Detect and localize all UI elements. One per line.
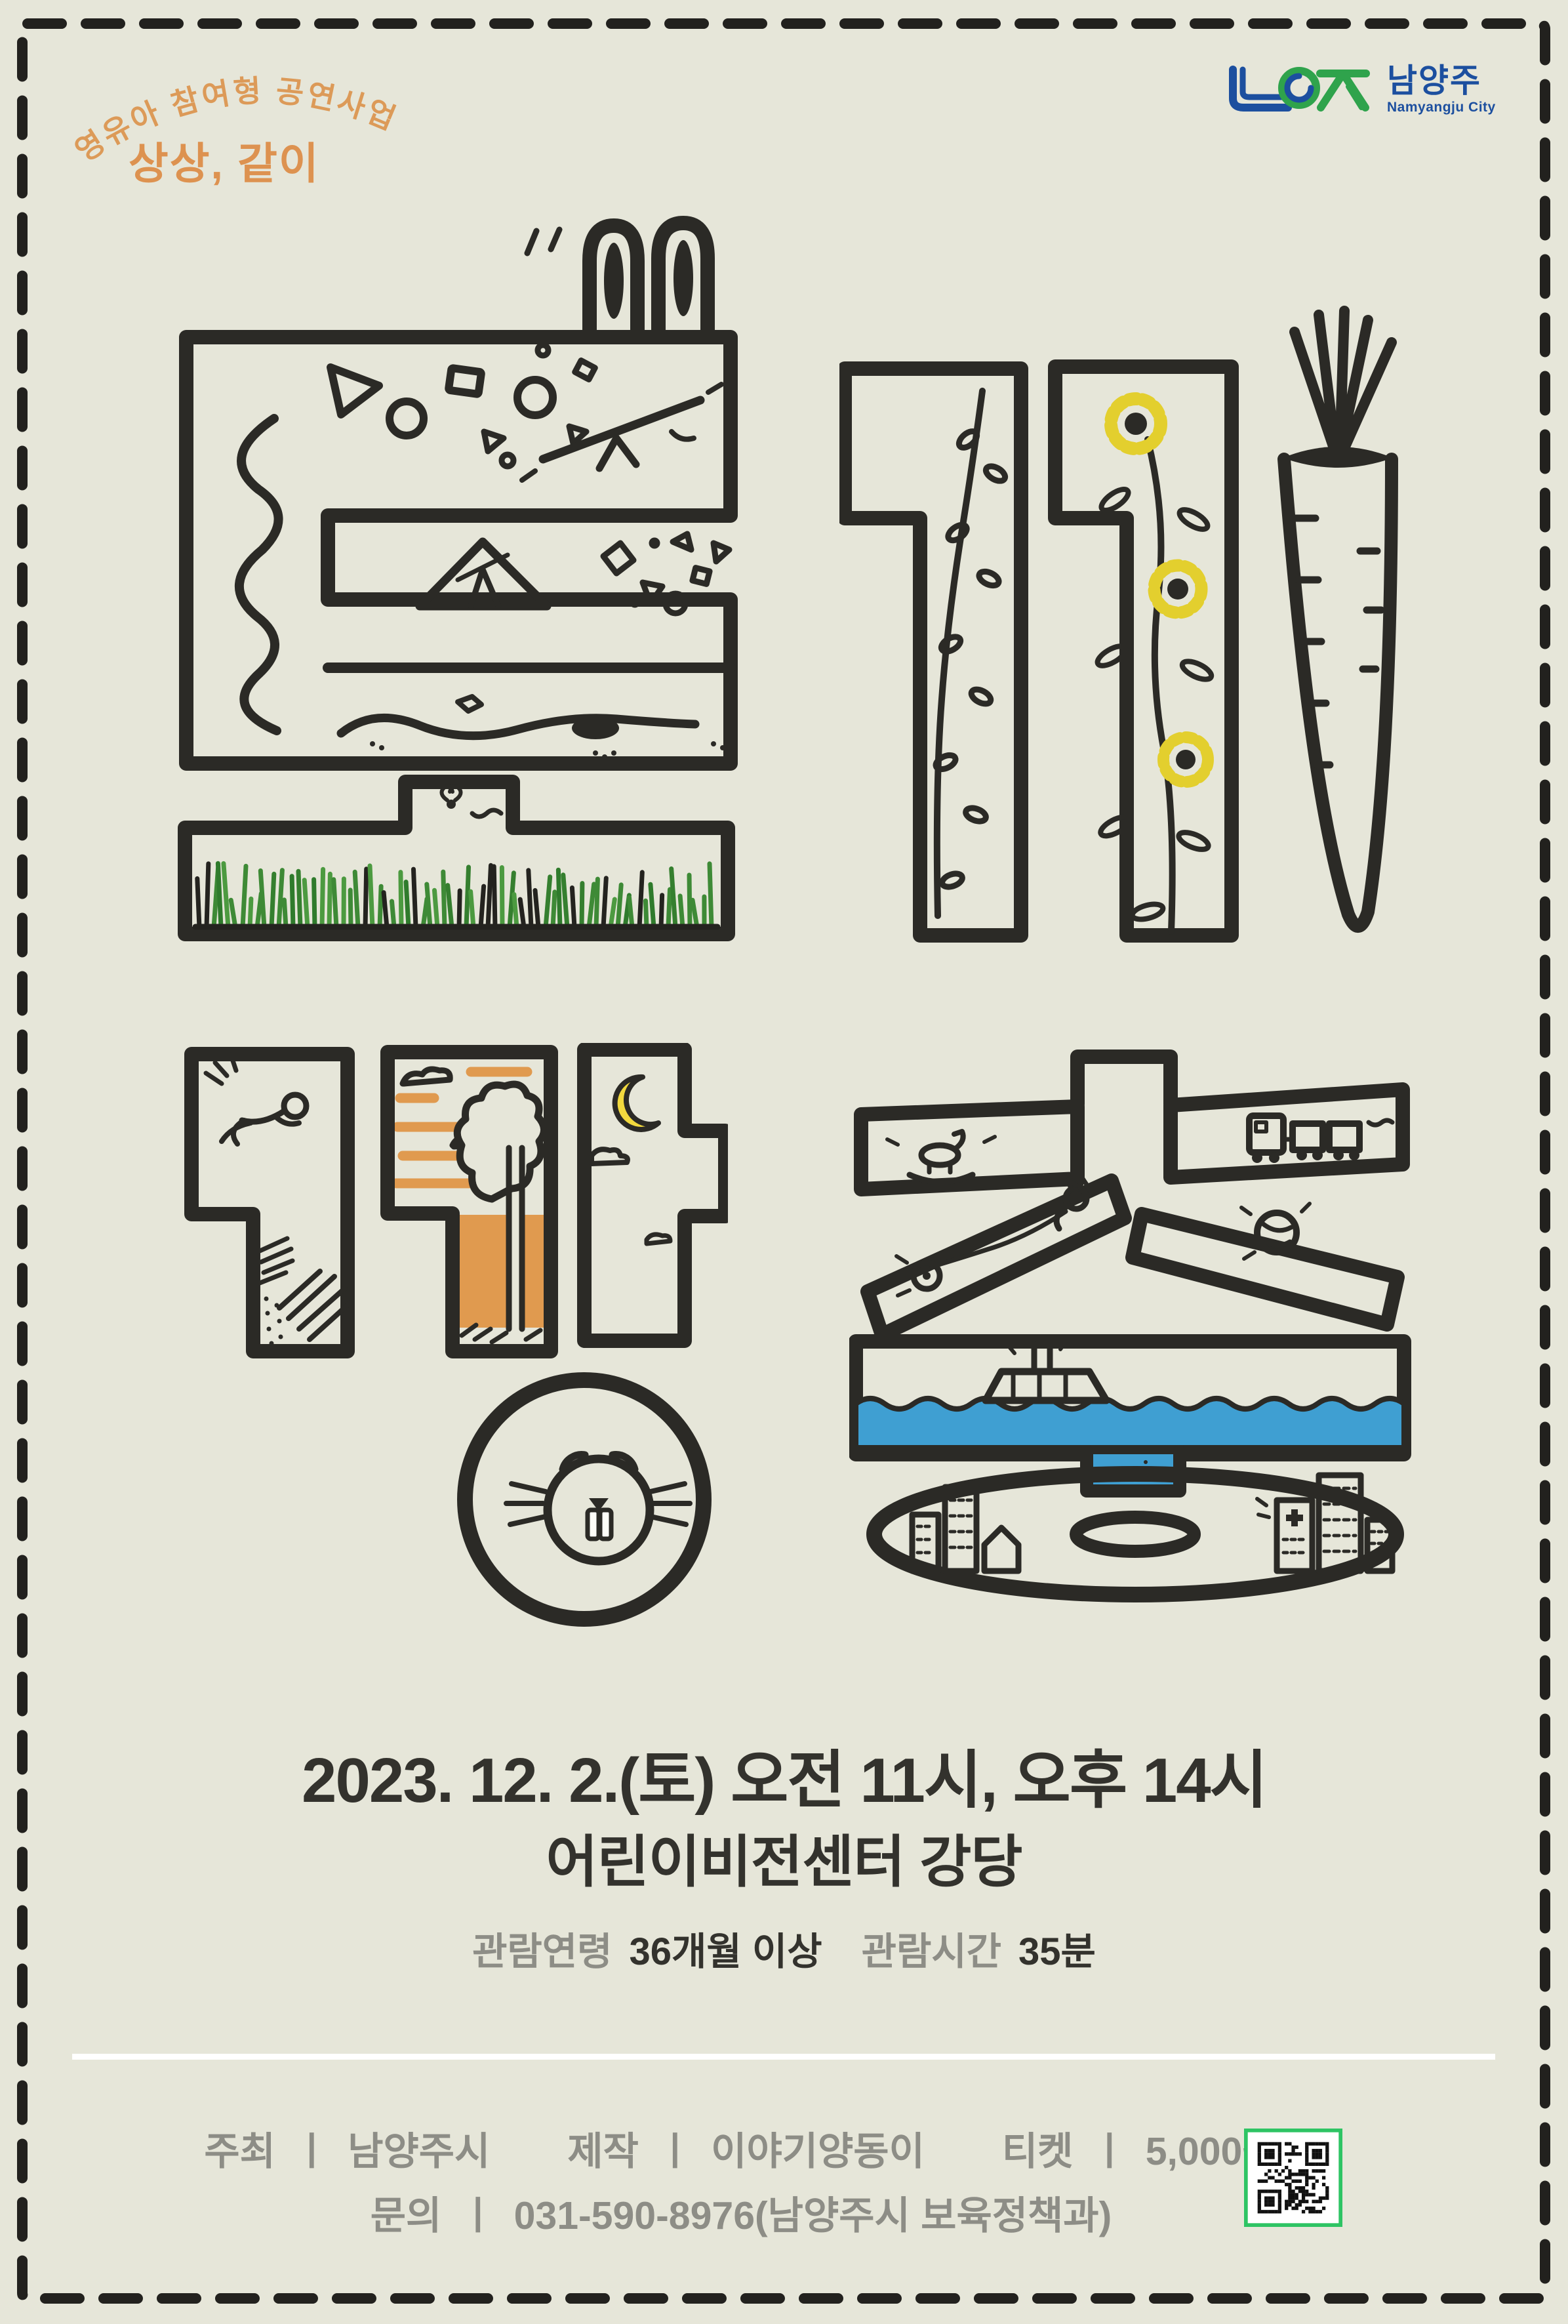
city-emblem-icon bbox=[1225, 64, 1373, 117]
center-hole bbox=[1076, 1517, 1194, 1551]
glyph-kki-flowers-carrot bbox=[839, 302, 1430, 951]
toy-train-doodle bbox=[1249, 1116, 1392, 1163]
city-logo-text: 남양주 Namyangju City bbox=[1387, 64, 1496, 115]
glyph-to-rabbit bbox=[176, 215, 740, 956]
divider-line bbox=[72, 2054, 1495, 2060]
inquiry-label: 문의 bbox=[371, 2184, 442, 2240]
sunflower-stalk bbox=[1095, 399, 1214, 931]
host-group: 주최 ㅣ 남양주시 bbox=[204, 2120, 490, 2176]
shape-doodles bbox=[331, 345, 595, 466]
separator: ㅣ bbox=[294, 2120, 329, 2176]
duration-value: 35분 bbox=[1018, 1921, 1096, 1976]
ticket-group: 티켓 ㅣ 5,000원 bbox=[1002, 2120, 1278, 2176]
bar-leaves-outline bbox=[845, 369, 1021, 935]
maker-value: 이야기양동이 bbox=[711, 2120, 925, 2176]
glyph-chong bbox=[849, 1046, 1413, 1604]
vowel-a-outline bbox=[584, 1050, 725, 1341]
separator: ㅣ bbox=[460, 2184, 495, 2240]
water-fill bbox=[856, 1398, 1404, 1448]
sunset-ground-fill bbox=[453, 1215, 549, 1328]
crescent-moon bbox=[615, 1077, 658, 1130]
hill-doodle bbox=[341, 697, 725, 760]
grass-blades bbox=[195, 863, 717, 928]
rocking-horse-doodle bbox=[887, 1131, 995, 1182]
leg-right bbox=[1133, 1214, 1397, 1324]
glyph-kkang bbox=[184, 1043, 728, 1640]
program-title: 상상, 같이 bbox=[129, 129, 548, 192]
age-group: 관람연령 36개월 이상 bbox=[472, 1921, 822, 1976]
tree-crown bbox=[457, 1084, 544, 1199]
night-clouds bbox=[592, 1149, 670, 1244]
meta-line: 관람연령 36개월 이상 관람시간 35분 bbox=[0, 1921, 1568, 1976]
host-value: 남양주시 bbox=[348, 2120, 490, 2176]
running-child-doodle bbox=[206, 1055, 306, 1144]
maker-label: 제작 bbox=[567, 2120, 639, 2176]
spiral-scribble bbox=[239, 418, 279, 731]
inquiry-group: 문의 ㅣ 031-590-8976(남양주시 보육정책과) bbox=[371, 2184, 1112, 2240]
schedule-line: 2023. 12. 2.(토) 오전 11시, 오후 14시 bbox=[0, 1729, 1568, 1820]
host-label: 주최 bbox=[204, 2120, 275, 2176]
poster-root: { "header": { "arc_label": "영유아 참여형 공연사업… bbox=[0, 0, 1568, 2324]
separator: ㅣ bbox=[1091, 2120, 1127, 2176]
inquiry-value: 031-590-8976(남양주시 보육정책과) bbox=[514, 2184, 1112, 2240]
carrot-doodle bbox=[1283, 311, 1393, 926]
separator: ㅣ bbox=[657, 2120, 693, 2176]
boat-doodle bbox=[986, 1341, 1106, 1400]
venue-line: 어린이비전센터 강당 bbox=[0, 1816, 1568, 1898]
age-value: 36개월 이상 bbox=[630, 1921, 822, 1976]
tick-marks bbox=[527, 230, 559, 253]
qr-code bbox=[1244, 2129, 1342, 2227]
field-hatch bbox=[258, 1238, 350, 1346]
ring-outline bbox=[465, 1380, 704, 1619]
duration-label: 관람시간 bbox=[862, 1921, 1001, 1976]
age-label: 관람연령 bbox=[472, 1921, 612, 1976]
butterfly-doodle bbox=[441, 786, 501, 817]
city-name-en: Namyangju City bbox=[1387, 100, 1496, 115]
chieut-hat bbox=[1077, 1057, 1171, 1104]
duration-group: 관람시간 35분 bbox=[862, 1921, 1096, 1976]
beaver-face bbox=[506, 1455, 690, 1561]
city-name-kr: 남양주 bbox=[1387, 64, 1496, 97]
city-logo: 남양주 Namyangju City bbox=[1225, 64, 1496, 117]
maker-group: 제작 ㅣ 이야기양동이 bbox=[567, 2120, 925, 2176]
wildflower-branch bbox=[934, 391, 1008, 916]
ticket-label: 티켓 bbox=[1002, 2120, 1074, 2176]
